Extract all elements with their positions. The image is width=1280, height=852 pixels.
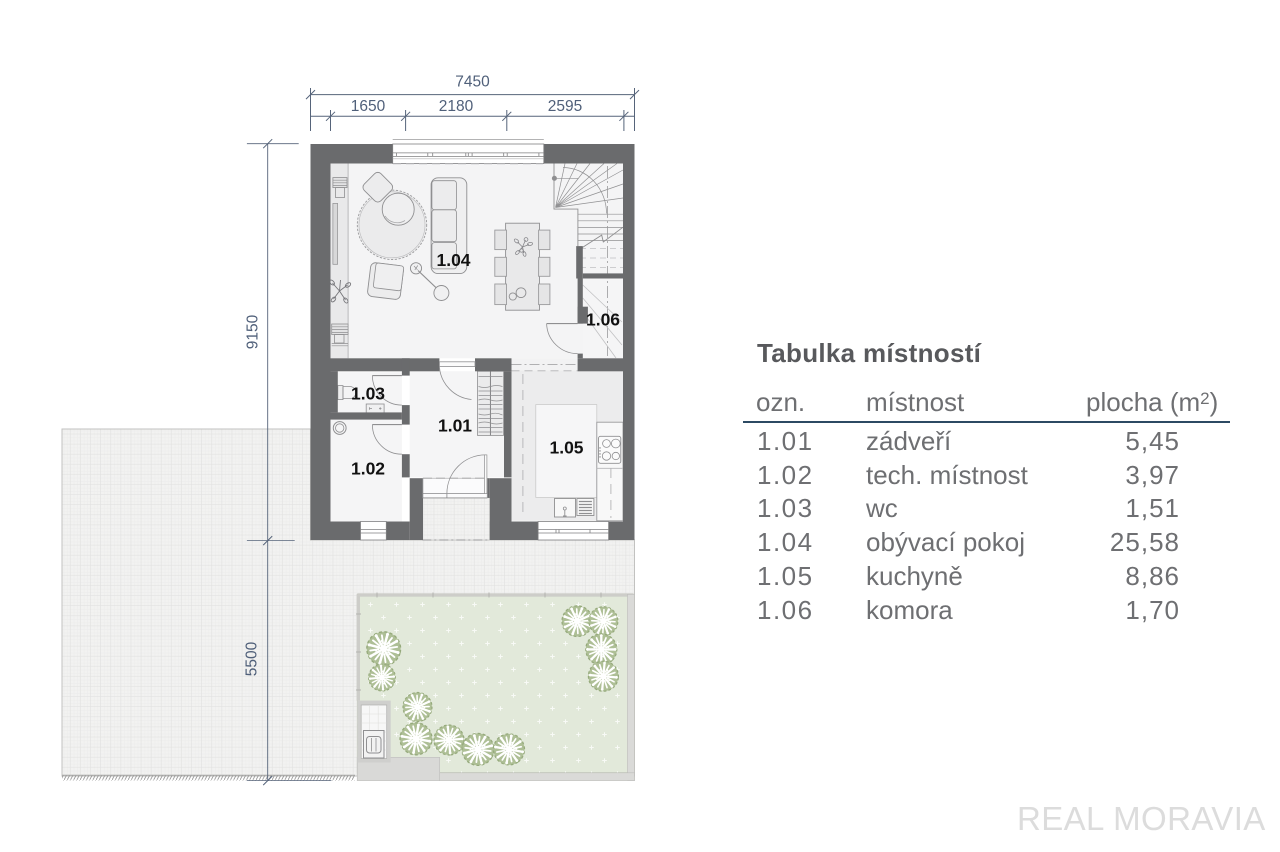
svg-text:5500: 5500 <box>244 641 261 676</box>
svg-text:1.02: 1.02 <box>351 459 385 479</box>
svg-text:1.03: 1.03 <box>351 384 385 404</box>
svg-text:2595: 2595 <box>548 98 582 115</box>
svg-text:1.05: 1.05 <box>549 438 583 458</box>
svg-text:2180: 2180 <box>439 98 474 115</box>
svg-text:1.06: 1.06 <box>586 310 620 330</box>
svg-text:1.01: 1.01 <box>438 416 472 436</box>
svg-text:7450: 7450 <box>455 74 490 91</box>
svg-text:9150: 9150 <box>245 314 262 349</box>
svg-text:1650: 1650 <box>351 98 386 115</box>
svg-text:1.04: 1.04 <box>436 250 470 270</box>
